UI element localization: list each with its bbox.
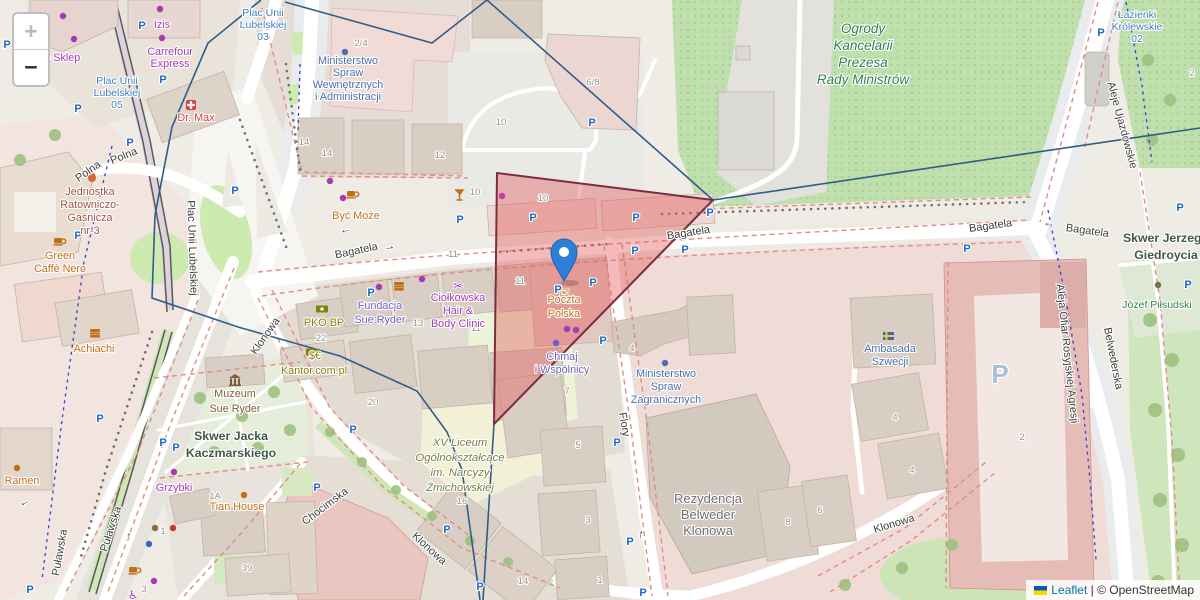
house-number: 11 — [515, 276, 525, 287]
map-label: Achiachi — [74, 343, 115, 355]
parking-icon: P — [159, 74, 166, 86]
house-number: 4 — [629, 343, 634, 354]
map-marker-hole — [559, 247, 569, 257]
parking-icon: P — [589, 277, 596, 289]
map-label: ← — [338, 221, 352, 237]
house-number: 3 — [141, 584, 146, 595]
scissors-icon: ✂ — [453, 279, 463, 293]
pharmacy-cross-icon — [186, 100, 196, 110]
parking-icon: P — [159, 437, 166, 449]
house-number: 8 — [785, 517, 790, 528]
paw-icon — [71, 36, 77, 42]
flower-icon — [340, 195, 346, 201]
chair-icon — [170, 525, 176, 531]
house-number: 2/4 — [354, 38, 367, 49]
parking-icon: P — [626, 536, 633, 548]
map-label: Dr. Max — [177, 112, 215, 124]
house-number: 10 — [470, 187, 481, 198]
utensils-icon — [241, 492, 247, 498]
house-number: 4 — [909, 465, 914, 476]
map-label: Tian House — [210, 501, 265, 513]
bottle-icon — [564, 326, 570, 332]
tshirt-icon — [327, 178, 333, 184]
shop-bag-icon — [60, 13, 66, 19]
parking-icon: P — [639, 587, 646, 599]
house-number: 1 — [597, 575, 602, 586]
parking-icon: P — [138, 20, 145, 32]
house-number: 11 — [448, 249, 458, 260]
map-canvas: ✂✉♿ PPPPPPPPPPPPPPPPPPPPPPPPPPPPPPPPPP 2… — [0, 0, 1200, 600]
gov-dot — [662, 360, 668, 366]
parking-icon: P — [349, 424, 356, 436]
house-number: 5 — [575, 440, 580, 451]
parking-icon: P — [963, 243, 970, 255]
poi-dot — [146, 541, 152, 547]
house-number: 6 — [817, 505, 822, 516]
parking-icon: P — [529, 212, 536, 224]
parking-icon: P — [96, 413, 103, 425]
factory-icon — [171, 469, 177, 475]
house-number: 10 — [538, 193, 549, 204]
map-label: Grzybki — [156, 482, 193, 494]
house-number: 14 — [299, 137, 310, 148]
map-label: Kantor.com.pl — [281, 365, 347, 377]
parking-icon: P — [631, 245, 638, 257]
wine-icon — [573, 327, 579, 333]
burger-icon — [394, 282, 404, 291]
house-number: 4 — [892, 412, 897, 423]
map-label: Być Może — [332, 210, 379, 222]
parking-icon: P — [681, 244, 688, 256]
leaflet-link[interactable]: Leaflet — [1051, 583, 1087, 597]
house-number: 10 — [496, 117, 507, 128]
parking-icon: P — [476, 581, 483, 593]
map-label: ↑ — [126, 529, 132, 543]
house-number: 2 — [1189, 68, 1194, 79]
map-label: PKO BP — [304, 317, 344, 329]
house-number: 2 — [1019, 432, 1024, 443]
basket-icon — [159, 35, 165, 41]
attribution-separator: | — [1087, 583, 1097, 597]
house-number: 7 — [564, 386, 569, 397]
parking-icon: P — [613, 437, 620, 449]
parking-icon: P — [1176, 202, 1183, 214]
fork-icon — [14, 465, 20, 471]
money-icon — [316, 306, 328, 313]
parking-icon: P — [588, 117, 595, 129]
map-label: ← — [1043, 215, 1055, 229]
map-label: Ramen — [5, 475, 40, 487]
map-label: Izis — [154, 19, 171, 31]
parking-icon: P — [632, 212, 639, 224]
bench-icon — [152, 525, 158, 531]
parking-icon: P — [706, 207, 713, 219]
house-number: 6/8 — [586, 77, 599, 88]
parking-icon: P — [991, 359, 1008, 389]
poi-dot — [553, 340, 559, 346]
ukraine-flag-icon — [1034, 586, 1047, 595]
parking-icon: P — [74, 103, 81, 115]
zoom-control: + − — [12, 12, 50, 87]
svg-text:✂: ✂ — [453, 279, 463, 293]
parking-icon: P — [26, 584, 33, 596]
poi-dot — [499, 193, 505, 199]
house-number: 16 — [457, 496, 468, 507]
poi-dot — [151, 578, 157, 584]
statue-icon — [1155, 282, 1161, 288]
parking-icon: P — [443, 524, 450, 536]
zoom-out-button[interactable]: − — [14, 50, 48, 85]
house-number: 1 — [160, 526, 165, 537]
burger-icon — [90, 329, 100, 338]
parking-icon: P — [172, 442, 179, 454]
sweden-flag-icon — [883, 332, 894, 340]
poi-dot — [419, 276, 425, 282]
clothes-icon — [157, 6, 163, 12]
svg-text:♿: ♿ — [128, 588, 139, 600]
openstreetmap-link[interactable]: © OpenStreetMap — [1097, 583, 1194, 597]
parking-icon: P — [313, 482, 320, 494]
house-number: 12 — [435, 150, 446, 161]
house-number: 20 — [368, 397, 379, 408]
map-label: AmbasadaSzwecji — [864, 343, 916, 368]
house-number: 22 — [316, 333, 327, 344]
parking-icon: P — [1097, 27, 1104, 39]
map-label: MinisterstwoSprawWewnętrznychi Administr… — [313, 55, 384, 103]
shopping-bag-icon — [376, 284, 382, 290]
parking-icon: P — [1184, 279, 1191, 291]
map-label: Józef Piłsudski — [1122, 299, 1191, 311]
leaflet-map[interactable]: ✂✉♿ PPPPPPPPPPPPPPPPPPPPPPPPPPPPPPPPPP 2… — [0, 0, 1200, 600]
house-number: 14 — [518, 576, 529, 587]
map-label: RezydencjaBelwederKlonowa — [674, 491, 743, 538]
house-number: 39 — [242, 563, 253, 574]
parking-icon: P — [231, 185, 238, 197]
wheelchair-icon: ♿ — [128, 588, 139, 600]
zoom-in-button[interactable]: + — [14, 14, 48, 50]
house-number: 13 — [413, 318, 424, 329]
parking-icon: P — [456, 214, 463, 226]
parking-icon: P — [367, 287, 374, 299]
house-number: 14 — [322, 148, 333, 159]
attribution-bar: Leaflet | © OpenStreetMap — [1026, 580, 1200, 600]
house-number: 3 — [585, 515, 590, 526]
map-label: CarrefourExpress — [147, 46, 193, 70]
map-label: $€ — [309, 350, 321, 362]
parking-icon: P — [599, 335, 606, 347]
parking-icon: P — [3, 39, 10, 51]
